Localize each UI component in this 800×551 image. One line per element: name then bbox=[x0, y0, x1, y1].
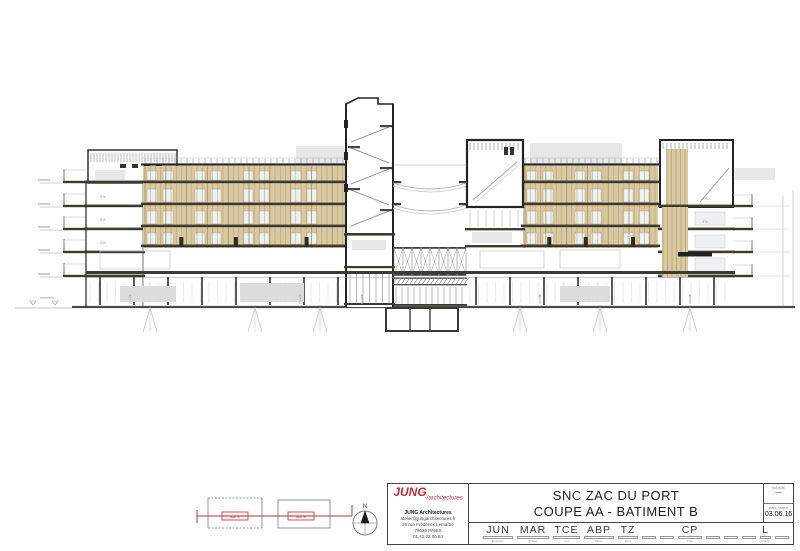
title-block: JUNG/architectures JUNG Architectures at… bbox=[387, 483, 794, 545]
svg-text:BAT A: BAT A bbox=[230, 515, 240, 519]
code-underline-box bbox=[642, 536, 656, 539]
date-cell: date indice 03.06.16 bbox=[764, 504, 793, 523]
svg-text:3%: 3% bbox=[100, 194, 106, 199]
firm-address: atelier@jungarchitectures.fr20 rue Frédé… bbox=[400, 516, 455, 540]
code-cell-empty bbox=[642, 525, 656, 539]
drawing-titles: SNC ZAC DU PORT COUPE AA - BATIMENT B bbox=[469, 484, 763, 522]
code-cell-empty bbox=[742, 525, 756, 539]
code-value: L bbox=[762, 525, 769, 536]
code-underline-box bbox=[706, 536, 720, 539]
code-caption: Lot bbox=[564, 539, 568, 543]
architect-logo: JUNG/architectures bbox=[393, 487, 462, 504]
code-value: CP bbox=[682, 525, 699, 536]
svg-text:3%: 3% bbox=[702, 196, 708, 201]
scale-value: — bbox=[764, 490, 793, 496]
code-value: JUN bbox=[486, 525, 509, 536]
code-cell-abp: ABPAffect. bbox=[584, 525, 614, 543]
project-title: SNC ZAC DU PORT bbox=[469, 488, 763, 504]
scale-cell: echelle — bbox=[764, 484, 793, 504]
code-caption: Zone bbox=[625, 539, 632, 543]
code-cell-tce: TCELot bbox=[553, 525, 580, 543]
code-underline-box bbox=[660, 536, 674, 539]
code-cell-empty bbox=[706, 525, 720, 539]
architect-logo-box: JUNG/architectures JUNG Architectures at… bbox=[388, 484, 469, 544]
right-penthouse-wing: 3%3% bbox=[658, 140, 790, 277]
code-cell-jun: JUNEmetteur bbox=[483, 525, 513, 543]
logo-sub: /architectures bbox=[427, 495, 463, 501]
svg-text:3%: 3% bbox=[100, 240, 106, 245]
ground-floor bbox=[86, 250, 735, 305]
code-value: TCE bbox=[555, 525, 579, 536]
right-sub-block bbox=[465, 140, 525, 247]
section-drawing: 3%3%3%3%3%BAT ABAT BN bbox=[0, 0, 800, 551]
svg-text:N: N bbox=[363, 504, 367, 510]
code-caption: Affect. bbox=[595, 539, 603, 543]
code-value: ABP bbox=[587, 525, 611, 536]
key-plans: BAT ABAT B bbox=[197, 498, 352, 528]
drawing-title: COUPE AA - BATIMENT B bbox=[469, 504, 763, 520]
title-block-main: SNC ZAC DU PORT COUPE AA - BATIMENT B ec… bbox=[469, 484, 793, 544]
svg-text:BAT B: BAT B bbox=[296, 515, 306, 519]
atrium-gap bbox=[393, 165, 468, 306]
code-cell-empty bbox=[660, 525, 674, 539]
code-cell-empty bbox=[775, 525, 789, 539]
code-row: JUNEmetteurMARPhaseTCELotABPAffect.TZZon… bbox=[469, 523, 793, 544]
basement bbox=[386, 308, 458, 331]
left-main-block bbox=[141, 158, 347, 248]
right-main-block bbox=[521, 158, 660, 248]
stair-tower bbox=[344, 98, 395, 307]
code-caption: Emetteur bbox=[492, 539, 504, 543]
info-box: echelle — date indice 03.06.16 bbox=[763, 484, 793, 522]
drawing-sheet: 3%3%3%3%3%BAT ABAT BN JUNG/architectures… bbox=[0, 0, 800, 551]
code-value: MAR bbox=[520, 525, 546, 536]
code-cell-l: LIndice bbox=[760, 525, 771, 543]
svg-text:3%: 3% bbox=[702, 219, 708, 224]
code-cell-tz: TZZone bbox=[618, 525, 638, 543]
code-cell-cp: CPType bbox=[678, 525, 702, 543]
svg-text:3%: 3% bbox=[100, 217, 106, 222]
north-compass: N bbox=[353, 504, 377, 535]
code-cell-mar: MARPhase bbox=[517, 525, 549, 543]
code-cell-empty bbox=[724, 525, 738, 539]
date-value: 03.06.16 bbox=[764, 510, 793, 519]
code-caption: Type bbox=[687, 539, 694, 543]
code-underline-box bbox=[742, 536, 756, 539]
code-caption: Phase bbox=[529, 539, 538, 543]
code-underline-box bbox=[775, 536, 789, 539]
code-caption: Indice bbox=[761, 539, 769, 543]
firm-address-line: 01.42.02.06.84 bbox=[400, 534, 455, 540]
code-value: TZ bbox=[621, 525, 636, 536]
code-underline-box bbox=[724, 536, 738, 539]
